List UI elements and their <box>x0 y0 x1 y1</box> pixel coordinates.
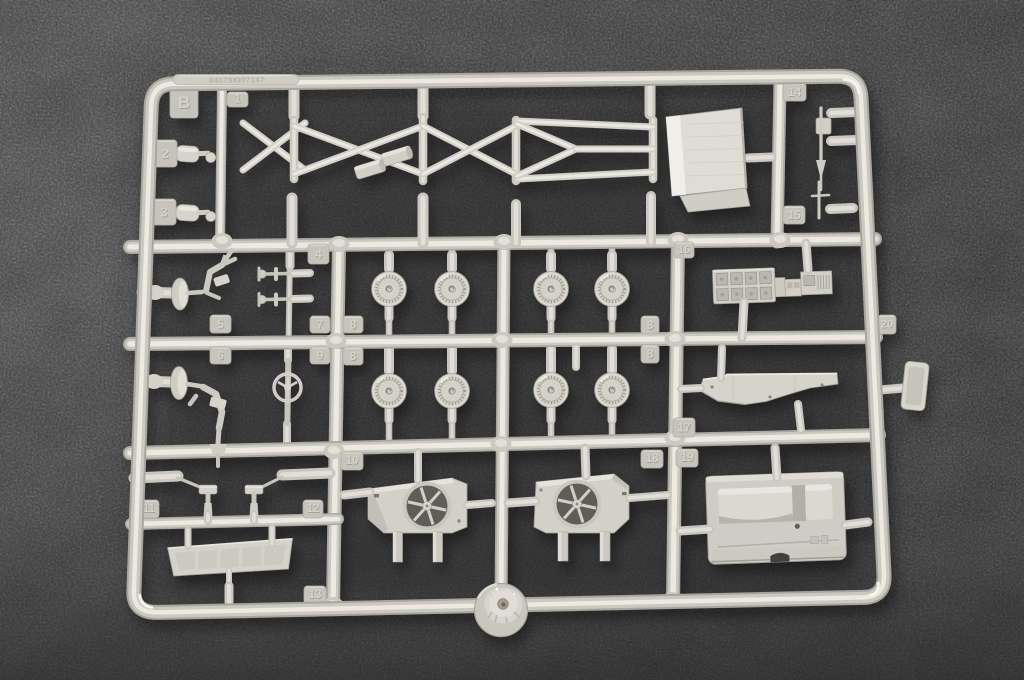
svg-text:13: 13 <box>309 589 322 601</box>
svg-text:10: 10 <box>346 455 359 467</box>
svg-text:4: 4 <box>315 247 322 261</box>
svg-text:7: 7 <box>317 318 324 332</box>
svg-text:12: 12 <box>307 503 320 515</box>
svg-text:18: 18 <box>646 453 659 465</box>
svg-text:2: 2 <box>161 146 168 161</box>
svg-text:04179Ю07147: 04179Ю07147 <box>209 75 265 85</box>
svg-text:5: 5 <box>217 317 224 331</box>
svg-text:19: 19 <box>681 452 694 464</box>
svg-text:8: 8 <box>350 318 357 332</box>
svg-text:3: 3 <box>160 205 167 220</box>
svg-text:15: 15 <box>787 208 801 222</box>
svg-text:8: 8 <box>647 318 654 332</box>
svg-text:1: 1 <box>234 94 241 106</box>
svg-text:9: 9 <box>317 349 324 363</box>
svg-text:B: B <box>178 93 190 112</box>
svg-text:6: 6 <box>217 349 224 363</box>
svg-text:11: 11 <box>143 503 156 515</box>
svg-text:16: 16 <box>678 244 690 256</box>
svg-text:8: 8 <box>350 349 357 363</box>
svg-text:8: 8 <box>647 347 654 361</box>
svg-text:20: 20 <box>881 319 893 331</box>
svg-text:14: 14 <box>788 85 802 99</box>
svg-text:17: 17 <box>677 421 691 435</box>
